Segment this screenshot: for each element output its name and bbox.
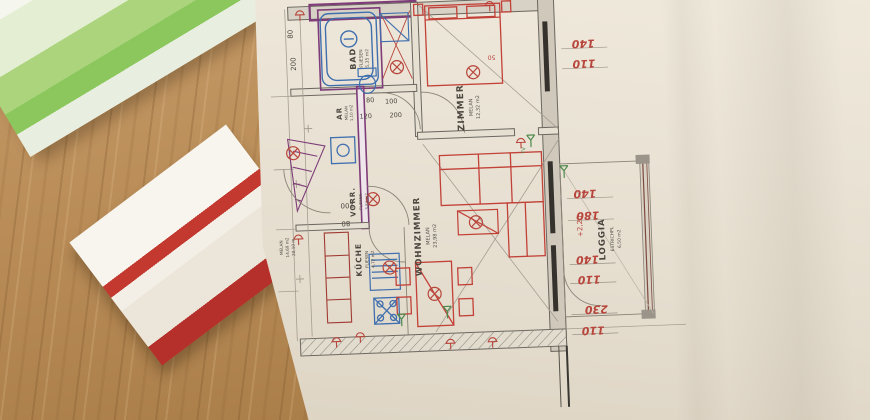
washing-machine — [331, 137, 356, 164]
green-outlet-icon — [397, 314, 405, 326]
ceiling-light-icon — [428, 287, 441, 300]
room-name: WOHNZIMMER — [412, 197, 425, 277]
room-area: 12,32 m2 — [475, 95, 482, 119]
photo-of-floor-plan: ZIMMER MELAN 12,32 m2 BAD FLIESEN 5,35 m… — [0, 0, 870, 420]
dimension-black: 80 — [286, 30, 294, 39]
kitchen-counter — [324, 232, 351, 323]
dimension-red: 180 — [576, 208, 600, 222]
dimension-black: 100 — [385, 97, 398, 105]
coffee-table — [457, 209, 498, 235]
note-line: 20,10 m — [290, 238, 296, 256]
survey-cross-icon — [296, 275, 304, 283]
ceiling-light-icon — [383, 261, 396, 274]
room-floor: FLIESEN — [358, 49, 365, 68]
bed-note: 50 — [487, 53, 495, 60]
floor-plan-sheet: ZIMMER MELAN 12,32 m2 BAD FLIESEN 5,35 m… — [225, 0, 870, 420]
room-label-bad: BAD FLIESEN 5,35 m2 — [348, 47, 371, 70]
floor-plan-drawing: ZIMMER MELAN 12,32 m2 BAD FLIESEN 5,35 m… — [227, 0, 694, 420]
dimension-black: 200 — [289, 57, 298, 71]
dimension-red: 230 — [584, 302, 608, 316]
room-floor: FLIESEN — [364, 251, 370, 268]
room-label-zimmer: ZIMMER MELAN 12,32 m2 — [456, 84, 483, 132]
dimension-red: 140 — [573, 187, 597, 201]
dimension-black: 80 — [366, 96, 375, 104]
loggia-outline — [560, 155, 656, 322]
tv-label: TV — [521, 146, 527, 154]
kitchen-hob — [374, 297, 400, 324]
room-label-kueche: KÜCHE FLIESEN 4,72 m2 — [354, 242, 376, 276]
room-name: ZIMMER — [456, 84, 468, 131]
room-label-ar: AR MELAN 1,10 m2 — [335, 104, 354, 122]
room-area: 5,35 m2 — [364, 49, 371, 68]
room-area: 6,50 m2 — [616, 229, 623, 248]
dimension-red: 140 — [571, 37, 595, 51]
room-area: 23,98 m2 — [432, 224, 439, 248]
room-area: 1,10 m2 — [348, 104, 354, 121]
room-name: KÜCHE — [354, 243, 364, 277]
ceiling-light-icon — [469, 215, 482, 228]
green-outlet-icon — [443, 306, 451, 318]
room-label-loggia: LOGGIA ESTRICHPL 6,50 m2 — [597, 218, 624, 261]
dimension-black: 80 — [341, 219, 350, 227]
room-floor: MELAN — [468, 98, 475, 116]
ceiling-light-icon — [466, 65, 479, 78]
room-area: 3,84 m2 — [364, 193, 370, 210]
dimension-red: 110 — [577, 272, 601, 286]
note-line: MELAN — [278, 240, 284, 255]
dimension-black: 200 — [340, 201, 354, 210]
dimension-black: 200 — [389, 111, 402, 119]
dimension-red: 110 — [581, 323, 605, 337]
dimension-black: 120 — [359, 112, 372, 120]
room-floor: MELAN — [425, 227, 432, 245]
tv-outlet-icon — [527, 135, 535, 147]
room-area: 4,72 m2 — [370, 250, 376, 268]
room-label-wohnzimmer: WOHNZIMMER MELAN 23,98 m2 — [412, 196, 440, 276]
room-name: BAD — [348, 48, 358, 70]
room-floor: FLIESEN — [358, 193, 364, 209]
bad-red-cross — [380, 11, 413, 80]
dimension-red: 110 — [572, 57, 596, 71]
note-line: 14,69 m2 — [284, 237, 290, 258]
dimension-red: 140 — [575, 253, 599, 267]
ceiling-light-icon — [390, 60, 403, 73]
purple-hatch-wedge — [288, 138, 328, 211]
survey-cross-icon — [304, 124, 312, 132]
kitchen-note: MELAN 14,69 m2 20,10 m — [278, 237, 296, 258]
ceiling-light-icon — [286, 146, 299, 159]
room-floor: ESTRICHPL — [609, 226, 616, 251]
